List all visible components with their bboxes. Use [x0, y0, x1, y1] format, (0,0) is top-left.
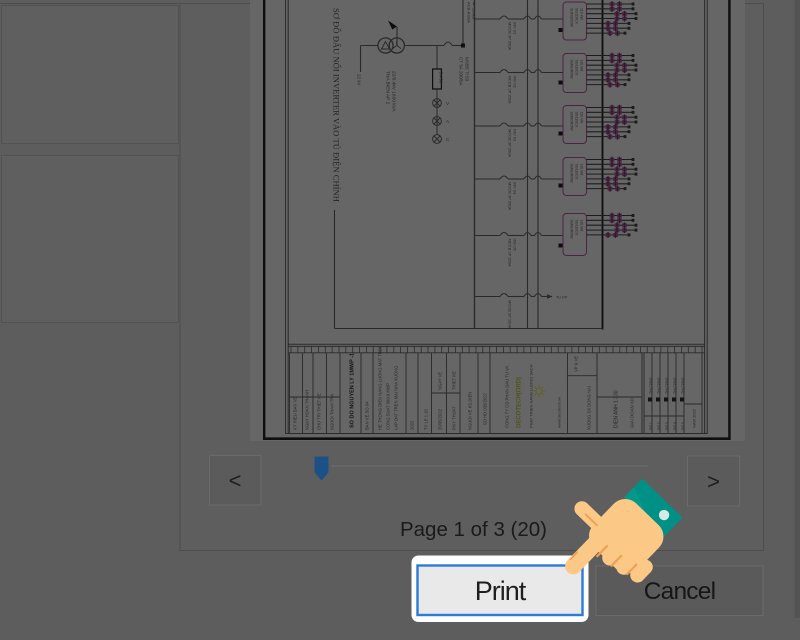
svg-text:110 kW: 110 kW	[580, 60, 584, 73]
svg-text:22/0.4kV 1600 kVA: 22/0.4kV 1600 kVA	[391, 71, 397, 113]
svg-text:BAN VE SO 04: BAN VE SO 04	[365, 401, 370, 430]
svg-text:SO HD 035/2022: SO HD 035/2022	[483, 392, 488, 425]
svg-text:SG110CX: SG110CX	[575, 164, 579, 181]
svg-text:INV 04: INV 04	[513, 182, 518, 195]
svg-text:2022: 2022	[410, 420, 415, 430]
svg-text:MSB5 TI 53: MSB5 TI 53	[465, 57, 470, 82]
svg-text:THIET KE: THIET KE	[452, 371, 457, 390]
svg-text:LAP DAT TREN MAI NHA XUONG: LAP DAT TREN MAI NHA XUONG	[394, 366, 399, 430]
svg-text:NGAY HOAN THANH: NGAY HOAN THANH	[305, 390, 310, 430]
svg-text:GD 4: GD 4	[673, 422, 677, 430]
svg-text:CONG SUAT 999.9 KWP: CONG SUAT 999.9 KWP	[386, 383, 391, 430]
svg-text:THI CONG: THI CONG	[649, 377, 653, 394]
svg-text:CT 5A 200/5A: CT 5A 200/5A	[459, 57, 464, 86]
svg-text:NAM 2022: NAM 2022	[692, 408, 697, 428]
svg-text:TY LE 1:10: TY LE 1:10	[424, 408, 429, 430]
svg-text:SO DO NGUYEN LY 1MWP -1: SO DO NGUYEN LY 1MWP -1	[350, 353, 356, 428]
svg-text:Print: Print	[475, 576, 527, 606]
svg-text:NGAY VE: NGAY VE	[438, 372, 443, 390]
svg-text:Page 1 of 3 (20): Page 1 of 3 (20)	[400, 518, 547, 541]
svg-text:SG110CX: SG110CX	[575, 8, 579, 25]
svg-text:4P 100kA: 4P 100kA	[472, 2, 477, 20]
svg-text:NGUOI THAM TRA: NGUOI THAM TRA	[330, 394, 335, 430]
svg-text:GD 5: GD 5	[681, 422, 685, 430]
svg-text:SUNGROW: SUNGROW	[570, 220, 574, 240]
svg-text:MCCB 3P 250A: MCCB 3P 250A	[508, 239, 513, 267]
svg-text:THA BIEN AP 2: THA BIEN AP 2	[385, 71, 391, 105]
svg-text:CHU TRI THIET KE: CHU TRI THIET KE	[317, 393, 322, 430]
svg-text:GD 1: GD 1	[649, 422, 653, 430]
svg-text:INV 03: INV 03	[513, 129, 518, 142]
svg-text:INV 01: INV 01	[513, 22, 518, 35]
svg-text:SG110CX: SG110CX	[575, 220, 579, 237]
svg-text:MCCB 3P 250A: MCCB 3P 250A	[508, 22, 513, 50]
svg-text:ACB 4000A: ACB 4000A	[467, 2, 472, 23]
svg-text:THI CONG: THI CONG	[665, 377, 669, 394]
svg-text:110 kW: 110 kW	[580, 112, 584, 125]
svg-text:>: >	[707, 469, 720, 494]
svg-text:Cancel: Cancel	[644, 578, 715, 605]
svg-text:INV 05: INV 05	[513, 239, 518, 252]
svg-text:22 kV: 22 kV	[357, 74, 362, 87]
svg-text:110 kW: 110 kW	[580, 164, 584, 177]
svg-text:THI CONG: THI CONG	[681, 377, 685, 394]
svg-text:TU DP: TU DP	[556, 295, 568, 299]
svg-text:SG110CX: SG110CX	[575, 112, 579, 129]
svg-text:<: <	[229, 468, 242, 493]
svg-text:MCCB 3P 250A: MCCB 3P 250A	[508, 182, 513, 210]
svg-text:SUNGROW: SUNGROW	[570, 164, 574, 184]
svg-text:SUNGROW: SUNGROW	[570, 112, 574, 132]
svg-text:GIAI DOAN XD: GIAI DOAN XD	[630, 398, 635, 428]
svg-text:DECOTECH(ORD): DECOTECH(ORD)	[517, 377, 523, 428]
svg-text:GD 2: GD 2	[657, 422, 661, 430]
svg-text:SƠ ĐỒ ĐẤU NỐI INVERTER VÀO TỦ: SƠ ĐỒ ĐẤU NỐI INVERTER VÀO TỦ ĐIỆN CHÍNH	[332, 8, 342, 202]
svg-text:110 kW: 110 kW	[580, 8, 584, 21]
svg-text:NGUOI VE KS.DIEN: NGUOI VE KS.DIEN	[468, 392, 473, 430]
svg-text:XUONG SX DONG NAI: XUONG SX DONG NAI	[587, 386, 592, 430]
svg-text:SUNGROW: SUNGROW	[570, 60, 574, 80]
svg-text:DM96: DM96	[439, 72, 444, 84]
svg-text:KY HIEU BAN VE: KY HIEU BAN VE	[293, 397, 298, 430]
svg-text:THI CONG: THI CONG	[673, 377, 677, 394]
svg-text:SG110CX: SG110CX	[575, 60, 579, 77]
svg-text:P.KY THUAT: P.KY THUAT	[452, 406, 457, 430]
svg-text:MCCB 3P 250A: MCCB 3P 250A	[508, 129, 513, 157]
svg-text:HE THONG DIEN NANG LUONG MAT T: HE THONG DIEN NANG LUONG MAT TROI	[378, 347, 383, 430]
svg-text:DIEN ANH 1 330: DIEN ANH 1 330	[614, 390, 620, 428]
svg-text:MCCB 3P 100A: MCCB 3P 100A	[508, 300, 513, 328]
svg-text:GD 3: GD 3	[665, 422, 669, 430]
svg-text:SUNGROW: SUNGROW	[570, 8, 574, 28]
svg-text:MCCB 3P 250A: MCCB 3P 250A	[508, 76, 513, 104]
svg-text:VP & VE: VP & VE	[574, 356, 579, 372]
svg-text:CONG TY CO PHAN DAU TU VA: CONG TY CO PHAN DAU TU VA	[505, 366, 510, 428]
svg-text:www.decotech.vn: www.decotech.vn	[557, 397, 562, 428]
svg-text:INV 02: INV 02	[513, 76, 518, 89]
svg-text:THI CONG: THI CONG	[657, 377, 661, 394]
svg-text:PHAT TRIEN NANG LUONG SACH: PHAT TRIEN NANG LUONG SACH	[529, 364, 534, 428]
svg-text:20/05/2022: 20/05/2022	[438, 408, 443, 430]
svg-text:110 kW: 110 kW	[580, 220, 584, 233]
